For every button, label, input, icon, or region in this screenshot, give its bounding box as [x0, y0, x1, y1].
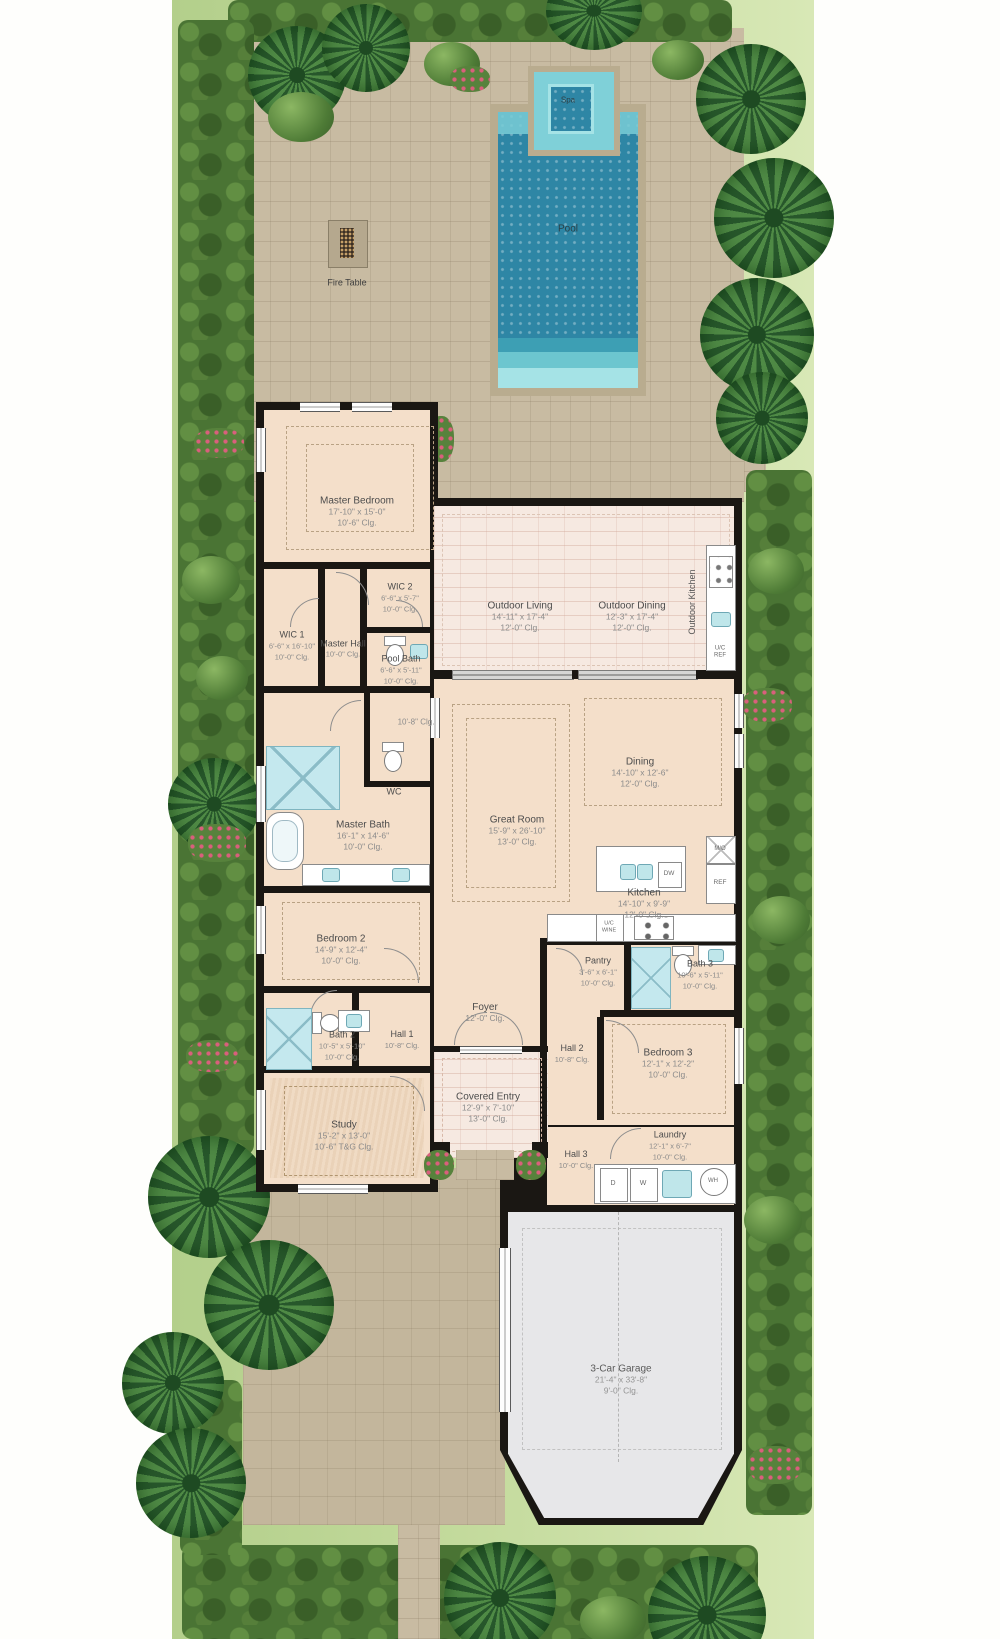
- room-label-wic1: WIC 1 6'-6" x 16'-10" 10'-0" Clg.: [269, 630, 315, 663]
- wall: [367, 627, 430, 633]
- room-label-pool-bath: Pool Bath 6'-6" x 5'-11" 10'-0" Clg.: [380, 654, 421, 687]
- toilet: [384, 750, 402, 772]
- spa: [548, 84, 594, 134]
- window: [298, 1184, 368, 1194]
- refrigerator-label: REF: [714, 880, 727, 887]
- room-label-bath2: Bath 2 10'-5" x 5'-10" 10'-0" Clg.: [319, 1030, 365, 1063]
- bush: [652, 40, 704, 80]
- room-label-wic2: WIC 2 6'-6" x 5'-7" 10'-0" Clg.: [381, 582, 419, 615]
- outdoor-grill: [709, 556, 733, 588]
- window: [256, 906, 266, 954]
- wall: [264, 562, 430, 569]
- outdoor-sink: [711, 612, 731, 627]
- wall: [624, 945, 631, 1010]
- wall-stub: [696, 670, 734, 679]
- wall: [318, 569, 325, 686]
- room-label-master-bedroom: Master Bedroom 17'-10" x 15'-0" 10'-6" C…: [320, 496, 394, 529]
- window: [734, 694, 744, 728]
- window: [256, 766, 266, 822]
- flower-bed: [748, 1446, 802, 1484]
- wall: [264, 986, 430, 993]
- bath3-shower: [631, 947, 671, 1009]
- ceiling-tray: [584, 698, 722, 806]
- dishwasher-label: DW: [664, 871, 675, 878]
- flower-bed: [194, 428, 244, 458]
- window: [734, 1028, 744, 1084]
- bush: [580, 1596, 646, 1639]
- bush: [748, 548, 804, 594]
- uc-ref-label: U/C REF: [714, 646, 726, 659]
- garage-inset: [522, 1228, 722, 1450]
- room-label-master-hall: Master Hall 10'-0" Clg.: [318, 637, 368, 660]
- room-label-dining: Dining 14'-10" x 12'-6" 12'-0" Clg.: [611, 757, 668, 790]
- flower-bed: [742, 688, 792, 722]
- microwave-oven-label: M/O: [714, 846, 725, 853]
- wall-stub: [434, 670, 452, 679]
- vanity-sink: [346, 1014, 362, 1028]
- room-label-hall3: Hall 3 10'-0" Clg.: [559, 1149, 594, 1171]
- upper-hall-clg-label: 10'-8" Clg.: [398, 717, 435, 728]
- garage-door-opening: [499, 1248, 511, 1412]
- ceiling-tray: [466, 718, 556, 888]
- bush: [744, 1196, 802, 1244]
- room-label-bath3: Bath 3 10'-6" x 5'-11" 10'-0" Clg.: [677, 959, 723, 992]
- palm-tree: [322, 4, 410, 92]
- fire-table-burner: [340, 228, 354, 258]
- palm-tree: [696, 44, 806, 154]
- fire-table-label: Fire Table: [327, 278, 366, 289]
- uc-wine-label: U/C WINE: [602, 921, 616, 934]
- master-shower: [266, 746, 340, 810]
- pool-step-2: [498, 352, 638, 368]
- island-sink: [637, 864, 653, 880]
- palm-tree: [716, 372, 808, 464]
- sliding-glass-door: [452, 670, 574, 680]
- bath2-shower: [266, 1008, 312, 1070]
- front-walk: [398, 1525, 440, 1639]
- palm-tree: [122, 1332, 224, 1434]
- window: [300, 402, 340, 412]
- window: [256, 428, 266, 472]
- room-label-great-room: Great Room 15'-9" x 26'-10" 13'-0" Clg.: [488, 815, 545, 848]
- palm-tree: [204, 1240, 334, 1370]
- foyer-entry-doors: [460, 1046, 522, 1054]
- spa-label: Spa: [561, 95, 575, 106]
- room-label-pantry: Pantry 3'-6" x 6'-1" 10'-0" Clg.: [579, 956, 617, 989]
- entry-planter: [424, 1150, 454, 1180]
- washer-label: W: [640, 1181, 647, 1188]
- window: [256, 1090, 266, 1150]
- entry-planter: [516, 1150, 546, 1180]
- palm-tree: [148, 1136, 270, 1258]
- master-tub-basin: [272, 820, 298, 862]
- room-label-bedroom2: Bedroom 2 14'-9" x 12'-4" 10'-0" Clg.: [315, 934, 367, 967]
- island-sink: [620, 864, 636, 880]
- site-plan: Spa Pool Fire Table Master Bedroom 17'-1…: [0, 0, 1000, 1639]
- palm-tree: [714, 158, 834, 278]
- wall: [597, 1017, 604, 1120]
- dryer-label: D: [610, 1181, 615, 1188]
- palm-tree: [136, 1428, 246, 1538]
- flower-bed: [450, 66, 490, 92]
- wc-label: WC: [387, 787, 402, 798]
- pool-step-1: [498, 338, 638, 352]
- vanity-sink: [322, 868, 340, 882]
- bush: [268, 92, 334, 142]
- wall: [264, 686, 430, 693]
- laundry-sink: [662, 1170, 692, 1198]
- room-label-kitchen: Kitchen 14'-10" x 9'-9" 12'-0" Clg.: [618, 888, 670, 921]
- hedge-right: [746, 470, 812, 1515]
- flower-bed: [186, 1040, 238, 1072]
- entry-walk: [456, 1150, 514, 1180]
- bush: [196, 656, 248, 700]
- room-label-laundry: Laundry 12'-1" x 6'-7" 10'-0" Clg.: [649, 1130, 691, 1163]
- flower-bed: [188, 824, 246, 862]
- room-label-garage: 3-Car Garage 21'-4" x 33'-8" 9'-0" Clg.: [590, 1364, 651, 1397]
- pool-step-3: [498, 368, 638, 388]
- pool-label: Pool: [558, 224, 578, 235]
- room-label-outdoor-living: Outdoor Living 14'-11" x 17'-4" 12'-0" C…: [487, 601, 552, 634]
- room-label-foyer: Foyer 12'-0" Clg.: [465, 1002, 504, 1024]
- wall: [600, 1010, 734, 1017]
- room-label-study: Study 15'-2" x 13'-0" 10'-6" T&G Clg.: [315, 1120, 374, 1153]
- sliding-glass-door: [578, 670, 698, 680]
- room-label-covered-entry: Covered Entry 12'-9" x 7'-10" 13'-0" Clg…: [456, 1092, 520, 1125]
- vanity-sink: [392, 868, 410, 882]
- wall: [364, 693, 370, 785]
- room-label-outdoor-kitchen: Outdoor Kitchen: [687, 569, 697, 634]
- room-label-master-bath: Master Bath 16'-1" x 14'-6" 10'-0" Clg.: [336, 820, 390, 853]
- room-label-hall1: Hall 1 10'-8" Clg.: [385, 1029, 420, 1051]
- bush: [752, 896, 810, 944]
- garage-bay-divider: [618, 1212, 620, 1462]
- room-label-outdoor-dining: Outdoor Dining 12'-3" x 17'-4" 12'-0" Cl…: [598, 601, 665, 634]
- bush: [182, 556, 240, 604]
- room-label-bedroom3: Bedroom 3 12'-1" x 12'-2" 10'-0" Clg.: [642, 1048, 694, 1081]
- window: [734, 734, 744, 768]
- wall: [264, 886, 430, 893]
- window: [352, 402, 392, 412]
- room-label-hall2: Hall 2 10'-8" Clg.: [555, 1043, 590, 1065]
- water-heater-label: WH: [708, 1178, 718, 1185]
